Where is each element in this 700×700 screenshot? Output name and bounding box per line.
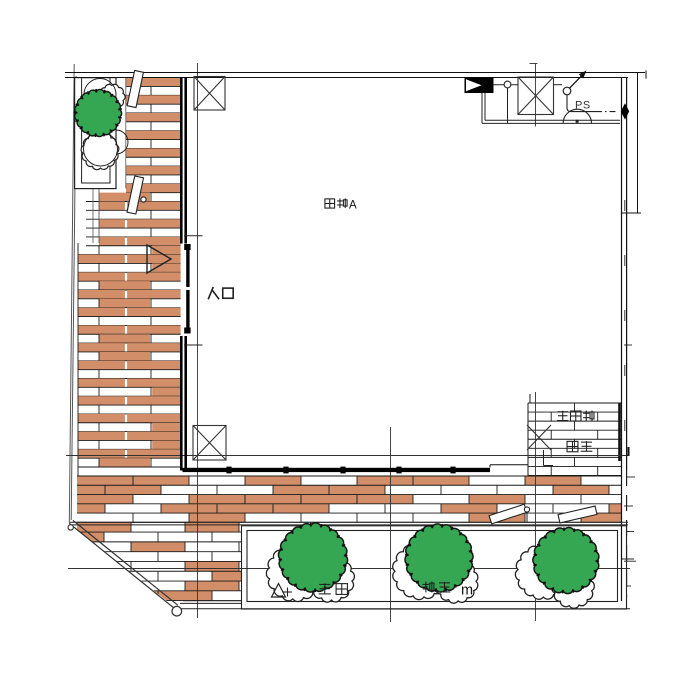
svg-text:PS: PS: [575, 100, 591, 112]
svg-text:m: m: [461, 583, 473, 599]
svg-text:A: A: [349, 200, 357, 212]
